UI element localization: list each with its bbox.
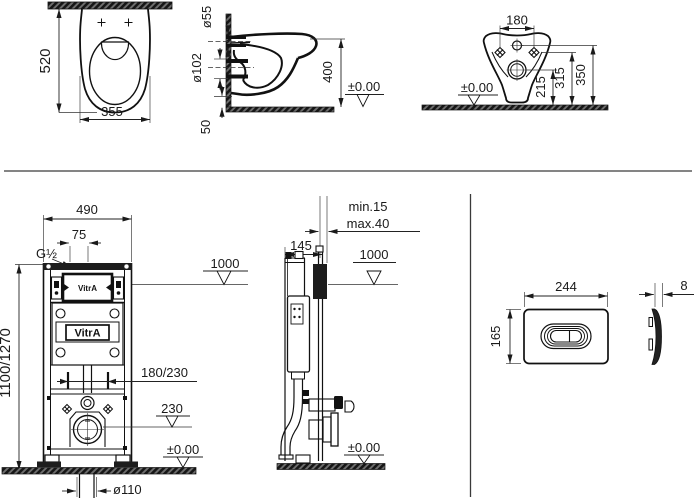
rail-bolts xyxy=(47,396,127,450)
datum-triangle-icon xyxy=(217,271,231,285)
datum-1000-front: 1000 xyxy=(132,256,248,285)
dim-244: 244 xyxy=(525,279,608,307)
dim-stud-spacing: 180/230 xyxy=(57,365,197,384)
frame-feet xyxy=(37,455,138,467)
dim-pan-depth-label: 520 xyxy=(37,48,54,73)
flush-opening xyxy=(101,42,128,60)
datum-zero-rear: ±0.00 xyxy=(458,80,498,105)
flush-access-block xyxy=(313,264,327,299)
fixing-mark-icons xyxy=(98,19,133,27)
dim-inlet-height-label: 350 xyxy=(573,64,588,86)
datum-zero-label: ±0.00 xyxy=(461,80,493,95)
plate-front xyxy=(524,310,608,364)
datum-zero-label: ±0.00 xyxy=(348,79,380,94)
inlet-thread-label: G½ xyxy=(36,246,57,261)
dim-plate-width-label: 244 xyxy=(555,279,577,294)
dim-plate-thickness-label: 8 xyxy=(680,278,687,293)
drain-assembly xyxy=(63,397,113,448)
dim-frame-depth-label: 145 xyxy=(290,238,312,253)
pan-section-profile xyxy=(231,34,316,95)
plate-side xyxy=(649,309,662,365)
seat-ring xyxy=(90,38,141,105)
datum-zero-side: ±0.00 xyxy=(345,79,384,107)
dim-dia102: ø102 xyxy=(189,48,228,90)
dim-hole-spacing-label: 180 xyxy=(506,13,528,28)
datum-zero-frame-side: ±0.00 xyxy=(344,440,384,464)
dim-frame-height: 1100/1270 xyxy=(0,265,44,471)
datum-1000-label: 1000 xyxy=(360,247,389,262)
dim-outlet-dia-label: ø102 xyxy=(189,53,204,83)
dim-8: 8 xyxy=(639,278,694,307)
cistern-tank: VitrA xyxy=(52,303,123,365)
datum-zero-label: ±0.00 xyxy=(348,440,380,455)
datum-triangle-icon xyxy=(468,95,480,105)
drawing-canvas: 520 355 ø55 xyxy=(0,0,696,499)
dim-75: 75 xyxy=(57,227,101,262)
drain-hole xyxy=(507,59,528,81)
datum-triangle-icon xyxy=(177,457,189,468)
datum-triangle-icon xyxy=(367,271,381,285)
dim-floor-gap-label: 50 xyxy=(198,120,213,134)
vitra-logo-text: VitrA xyxy=(78,284,97,293)
frame-side-view: min.15 max.40 145 1000 xyxy=(277,196,420,470)
dim-hole-height-label: 315 xyxy=(552,67,567,89)
top-rail xyxy=(43,263,132,270)
dim-165: 165 xyxy=(488,310,521,364)
side-cistern xyxy=(288,296,310,372)
dim-frame-width-label: 490 xyxy=(76,202,98,217)
dim-frame-height-label: 1100/1270 xyxy=(0,328,14,398)
frame-front-view: 490 75 G½ 1000 1100/1270 xyxy=(0,202,248,498)
datum-zero-front: ±0.00 xyxy=(163,442,203,468)
flush-unit: VitrA xyxy=(52,274,124,301)
flush-plate-view: 244 165 8 xyxy=(488,278,694,365)
inlet-hole xyxy=(511,39,524,53)
side-fittings xyxy=(302,390,354,446)
dim-stud-spacing-label: 180/230 xyxy=(141,365,188,380)
dim-pan-width-label: 355 xyxy=(101,104,123,119)
dim-plate-height-label: 165 xyxy=(488,326,503,348)
datum-230: 230 xyxy=(103,401,192,427)
floor-hatch xyxy=(422,105,608,110)
dim-wall-max-label: max.40 xyxy=(347,216,390,231)
dim-dia110: ø110 xyxy=(62,477,142,497)
dim-pan-height-label: 400 xyxy=(320,61,335,83)
waste-pipe xyxy=(80,474,95,498)
floor-hatch xyxy=(277,464,385,470)
wall-section xyxy=(48,2,172,9)
pan-side-view: ø55 ø102 400 ±0.00 50 xyxy=(189,6,384,134)
datum-1000-label: 1000 xyxy=(211,256,240,271)
floor-hatch xyxy=(226,107,334,112)
dim-wall-min-label: min.15 xyxy=(348,199,387,214)
vitra-logo-text: VitrA xyxy=(74,328,100,340)
datum-triangle-icon xyxy=(357,95,369,107)
pan-rear-view: 180 215 315 350 ±0.00 xyxy=(422,13,608,111)
fixing-studs xyxy=(68,372,108,389)
dual-flush-buttons xyxy=(551,331,582,343)
flush-button xyxy=(541,324,591,349)
dim-waste-dia-label: ø110 xyxy=(113,482,142,497)
dim-outlet-height-label: 215 xyxy=(533,76,548,98)
datum-triangle-icon xyxy=(358,455,370,464)
dim-inlet-dia-label: ø55 xyxy=(199,6,214,28)
datum-zero-label: ±0.00 xyxy=(167,442,199,457)
floor-hatch xyxy=(2,468,196,475)
datum-triangle-icon xyxy=(166,416,178,427)
pan-plan-view: 520 355 xyxy=(37,2,172,123)
dim-dia55: ø55 xyxy=(199,6,228,57)
datum-1000-side: 1000 xyxy=(328,247,398,285)
side-flush-pipe xyxy=(279,372,310,463)
datum-230-label: 230 xyxy=(161,401,183,416)
technical-drawing-sheet: 520 355 ø55 xyxy=(0,0,696,499)
dim-inlet-offset-label: 75 xyxy=(72,227,86,242)
